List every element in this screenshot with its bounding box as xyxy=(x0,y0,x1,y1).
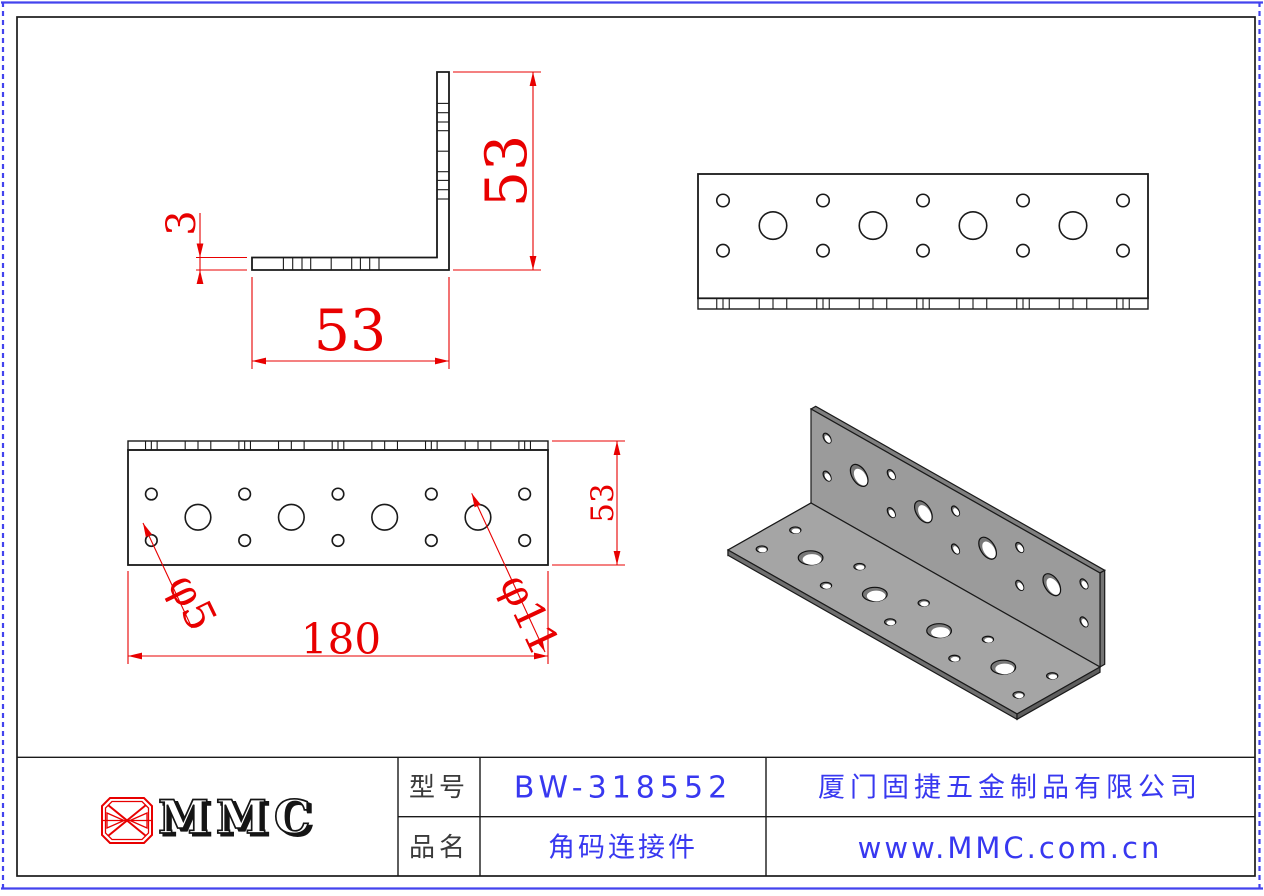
small-hole xyxy=(1117,194,1130,207)
dim-side-height: 53 xyxy=(474,135,540,208)
hole-bore xyxy=(920,601,929,606)
hole-bore xyxy=(1049,674,1058,679)
small-hole xyxy=(917,244,930,257)
hole-bore xyxy=(758,548,767,553)
hole-bore xyxy=(1015,693,1024,698)
small-hole xyxy=(1017,244,1030,257)
large-hole xyxy=(185,504,211,530)
small-hole xyxy=(519,535,531,547)
view-side-profile: 53 53 3 xyxy=(159,72,541,369)
small-hole xyxy=(332,488,344,500)
view-isometric xyxy=(728,406,1105,719)
small-hole xyxy=(717,194,730,207)
inner-frame xyxy=(17,17,1255,876)
hole-bore xyxy=(867,591,886,602)
small-hole xyxy=(332,535,344,547)
hole-bore xyxy=(887,620,896,625)
large-hole xyxy=(372,504,398,530)
small-hole xyxy=(426,535,438,547)
dim-arrow xyxy=(530,72,537,86)
isometric-geometry xyxy=(728,406,1105,719)
hole-bore xyxy=(931,627,950,638)
dim-arrow xyxy=(197,244,204,258)
company-website: www.MMC.com.cn xyxy=(858,831,1163,865)
dim-arrow xyxy=(128,653,142,660)
small-hole xyxy=(817,244,830,257)
hole-bore xyxy=(803,554,822,565)
l-profile-outline xyxy=(252,72,449,270)
view-top-face xyxy=(698,174,1148,309)
large-hole xyxy=(1059,212,1087,240)
large-hole xyxy=(279,504,305,530)
small-hole xyxy=(426,488,438,500)
title-block: MMC MMC 型号 品名 BW-318552 角码连接件 厦门固捷五金制品有限… xyxy=(17,757,1255,876)
dim-side-thickness: 3 xyxy=(159,210,205,235)
large-hole xyxy=(959,212,987,240)
dim-front-length: 180 xyxy=(301,615,381,664)
logo-octagon-icon xyxy=(102,798,152,843)
hole-bore xyxy=(792,529,801,534)
name-label: 品名 xyxy=(409,833,469,863)
iso-right-edge xyxy=(1100,570,1105,667)
small-hole xyxy=(519,488,531,500)
dim-arrow xyxy=(614,441,621,455)
dim-side-width: 53 xyxy=(314,298,387,364)
dim-arrow xyxy=(197,270,204,284)
view-front-face: 180 53 φ5 φ11 xyxy=(128,441,625,664)
dim-arrow xyxy=(614,551,621,565)
hole-bore xyxy=(984,638,993,643)
small-hole xyxy=(1017,194,1030,207)
page-border xyxy=(1,2,1263,889)
hole-bore xyxy=(995,664,1014,675)
logo-text: MMC xyxy=(158,790,317,844)
small-hole xyxy=(717,244,730,257)
company-logo: MMC MMC xyxy=(102,790,321,847)
small-hole xyxy=(817,194,830,207)
hole-bore xyxy=(951,657,960,662)
top-face-geometry xyxy=(698,174,1148,309)
hole-bore xyxy=(856,565,865,570)
small-hole xyxy=(239,535,251,547)
drawing-sheet: 53 53 3 180 53 φ5 φ11 MMC xyxy=(0,0,1264,896)
dim-arrow xyxy=(530,256,537,270)
logo-side-triangles xyxy=(103,813,151,828)
small-hole xyxy=(239,488,251,500)
model-label: 型号 xyxy=(409,773,469,803)
small-hole xyxy=(146,488,158,500)
model-value: BW-318552 xyxy=(514,771,732,806)
small-hole xyxy=(1117,244,1130,257)
large-hole xyxy=(759,212,787,240)
hole-bore xyxy=(822,584,831,589)
large-hole xyxy=(859,212,887,240)
cad-drawing-canvas: 53 53 3 180 53 φ5 φ11 MMC xyxy=(0,0,1264,896)
dim-front-width: 53 xyxy=(585,483,621,522)
name-value: 角码连接件 xyxy=(548,833,698,864)
dim-arrow xyxy=(435,358,449,365)
dim-arrow xyxy=(252,358,266,365)
company-name: 厦门固捷五金制品有限公司 xyxy=(818,773,1202,804)
dim-large-hole-diameter: φ11 xyxy=(490,567,569,663)
small-hole xyxy=(917,194,930,207)
